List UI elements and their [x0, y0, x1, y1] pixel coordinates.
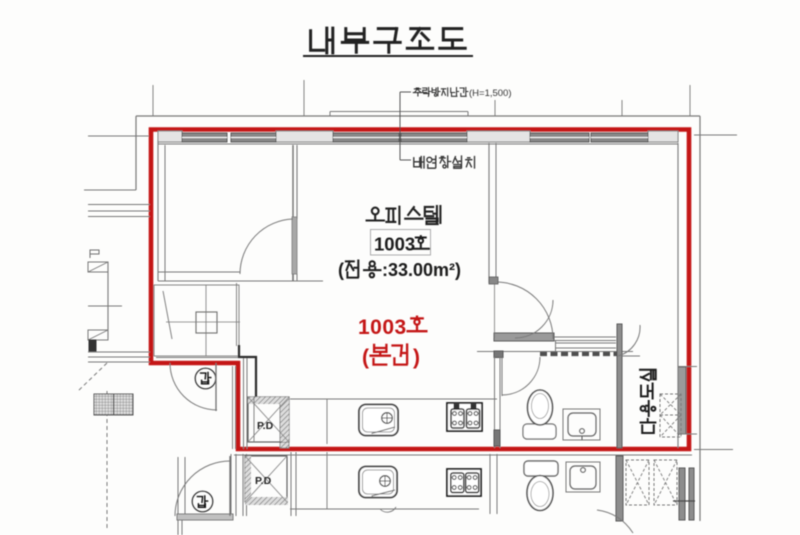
svg-text:(: (	[338, 260, 344, 280]
svg-text:1003: 1003	[358, 316, 407, 339]
svg-text::33.00m²): :33.00m²)	[382, 260, 461, 280]
svg-text:(H=1,500): (H=1,500)	[469, 88, 512, 99]
svg-text:1003: 1003	[374, 234, 415, 255]
svg-text:P.D: P.D	[255, 475, 272, 487]
svg-text:(: (	[362, 346, 369, 369]
svg-text:): )	[413, 346, 420, 369]
svg-text:P.D: P.D	[257, 420, 274, 432]
